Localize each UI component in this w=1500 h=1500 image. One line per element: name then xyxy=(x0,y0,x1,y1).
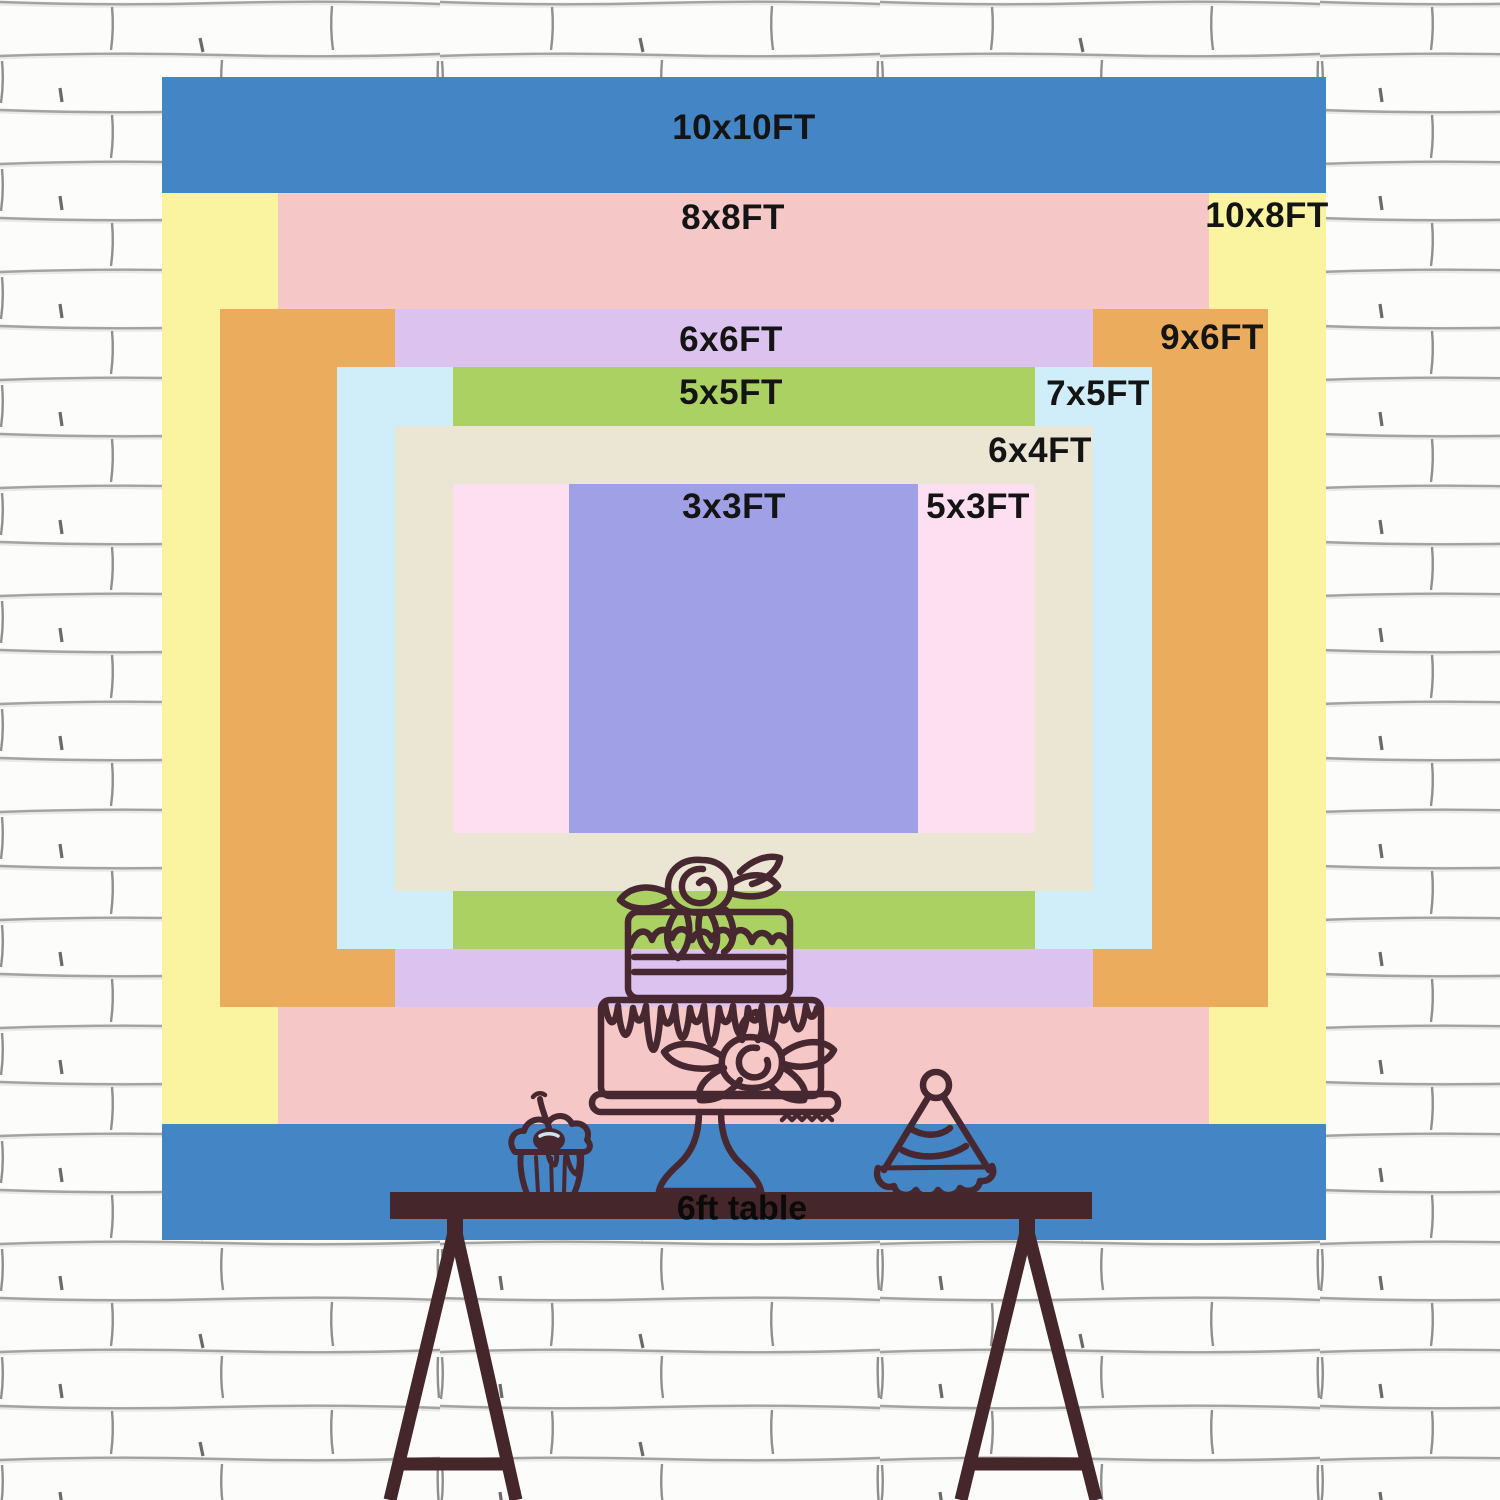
party-hat-icon xyxy=(877,1072,993,1196)
cupcake-icon xyxy=(511,1093,590,1196)
table-label: 6ft table xyxy=(677,1190,807,1229)
table xyxy=(390,1192,1096,1500)
backdrop-size-chart: 10x10FT 10x8FT 8x8FT 9x6FT 6x6FT 7x5FT 5… xyxy=(0,0,1500,1500)
cake-icon xyxy=(592,857,838,1191)
decorations-overlay xyxy=(0,0,1500,1500)
